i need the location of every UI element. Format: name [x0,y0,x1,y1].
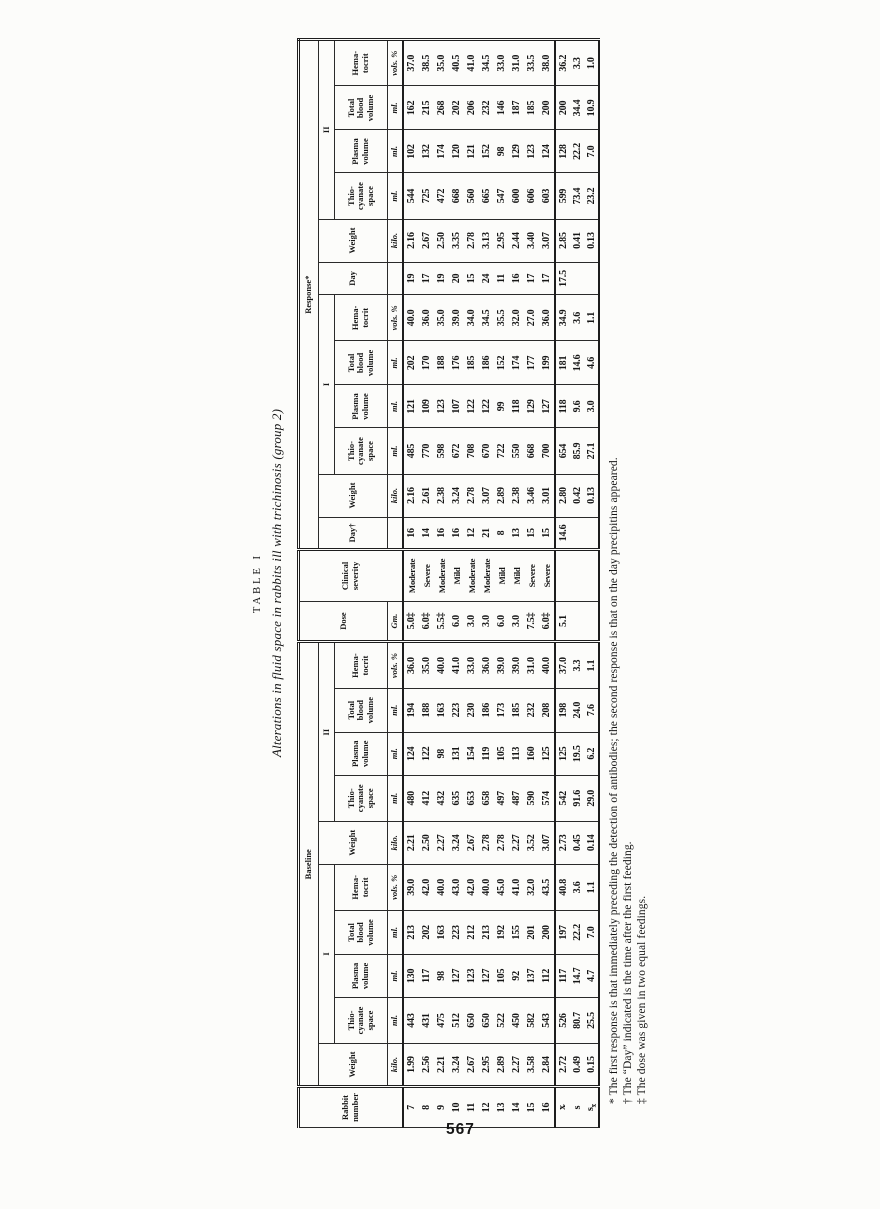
data-cell: 36.0 [479,642,494,688]
data-cell: 5.0‡ [403,601,419,642]
data-cell: 35.0 [434,40,449,86]
data-cell: 1.1 [584,295,599,341]
data-cell: 512 [449,997,464,1043]
column-header-thiocyanate-space: Thio- cyanate space [335,997,388,1043]
data-cell: 34.9 [555,295,570,341]
data-cell: 7.0 [584,910,599,954]
table-row: 103.2451212722343.03.2463513122341.06.0M… [449,40,464,1128]
data-cell: 16 [434,517,449,550]
data-cell: 3.52 [524,821,539,864]
table-row: 82.5643111720242.02.5041212218835.06.0‡S… [419,40,434,1128]
data-cell: Moderate [434,550,449,601]
data-cell: Moderate [464,550,479,601]
data-cell: 5.5‡ [434,601,449,642]
data-cell: 3.13 [479,219,494,262]
data-cell: 6.0‡ [419,601,434,642]
data-cell: 450 [509,997,524,1043]
data-cell: 200 [539,86,555,130]
data-cell: 73.4 [570,173,584,219]
data-cell: 668 [449,173,464,219]
data-cell: 3.58 [524,1044,539,1087]
data-cell: 152 [479,130,494,173]
data-cell: 185 [524,86,539,130]
data-cell [584,517,599,550]
column-header-hematocrit: Hema- tocrit [335,642,388,688]
data-cell: 3.0 [584,385,599,428]
data-cell: 194 [403,688,419,732]
data-cell: 21 [479,517,494,550]
data-cell: 3.01 [539,474,555,517]
data-cell: 124 [539,130,555,173]
data-cell: 8 [494,517,509,550]
data-cell: 15 [539,517,555,550]
data-cell: 38.0 [539,40,555,86]
column-header-hematocrit: Hema- tocrit [335,295,388,341]
data-cell: 35.5 [494,295,509,341]
stat-label: sx̄ [584,1087,599,1128]
data-cell: 1.1 [584,864,599,910]
column-header-dose: Dose [299,601,388,642]
data-cell: 20 [449,262,464,295]
data-cell: 43.5 [539,864,555,910]
data-cell: 2.78 [464,219,479,262]
data-cell: 206 [464,86,479,130]
data-cell: 19 [434,262,449,295]
data-cell: 200 [555,86,570,130]
data-cell: 137 [524,954,539,997]
data-cell: 599 [555,173,570,219]
data-cell: 36.2 [555,40,570,86]
data-cell: 37.0 [403,40,419,86]
data-cell: 650 [479,997,494,1043]
data-cell: 582 [524,997,539,1043]
data-cell: 475 [434,997,449,1043]
data-cell: 170 [419,341,434,385]
data-cell: 3.24 [449,474,464,517]
data-cell: 198 [555,688,570,732]
column-header-weight: Weight [319,219,388,262]
data-cell: 188 [434,341,449,385]
unit-ml: ml. [388,86,404,130]
data-cell: 2.21 [434,1044,449,1087]
data-cell: 7.5‡ [524,601,539,642]
table-body: 71.9944313021339.02.2148012419436.05.0‡M… [403,40,599,1128]
data-cell: 2.80 [555,474,570,517]
subgroup-header-two: II [319,642,335,821]
data-cell: 32.0 [509,295,524,341]
data-cell: 22.2 [570,130,584,173]
data-cell: 132 [419,130,434,173]
table-caption: Alterations in fluid space in rabbits il… [269,38,285,1128]
stats-row: s0.4980.714.722.23.60.4591.619.524.03.30… [570,40,584,1128]
data-cell: 542 [555,775,570,821]
data-cell: 14 [419,517,434,550]
data-cell: 174 [434,130,449,173]
stat-label: x̄ [555,1087,570,1128]
data-cell: 45.0 [494,864,509,910]
data-cell: 2.16 [403,474,419,517]
rabbit-number: 16 [539,1087,555,1128]
data-cell: 199 [539,341,555,385]
data-cell [570,601,584,642]
data-cell: 202 [449,86,464,130]
data-cell: 6.2 [584,732,599,775]
data-cell: 600 [509,173,524,219]
data-cell: 36.0 [403,642,419,688]
data-table: Rabbit number Baseline Dose Clinical sev… [297,38,600,1128]
data-cell: 3.3 [570,642,584,688]
data-cell: 603 [539,173,555,219]
data-cell: 14.6 [555,517,570,550]
column-header-plasma-volume: Plasma volume [335,385,388,428]
data-cell: 668 [524,428,539,474]
data-cell: 2.72 [555,1044,570,1087]
data-cell: Moderate [479,550,494,601]
unit-ml: ml. [388,130,404,173]
data-cell: 3.40 [524,219,539,262]
data-cell: 11 [494,262,509,295]
column-header-plasma-volume: Plasma volume [335,732,388,775]
header-group-row: Rabbit number Baseline Dose Clinical sev… [299,40,319,1128]
data-cell: 122 [479,385,494,428]
data-cell: 31.0 [509,40,524,86]
data-cell: 98 [434,954,449,997]
data-cell: 2.67 [464,821,479,864]
unit-ml: ml. [388,385,404,428]
data-cell: 0.14 [584,821,599,864]
data-cell: 197 [555,910,570,954]
footnote-asterisk: * The first response is that immediately… [607,38,621,1104]
data-cell: 432 [434,775,449,821]
data-cell: 3.6 [570,295,584,341]
data-cell: 2.38 [509,474,524,517]
data-cell: 43.0 [449,864,464,910]
data-cell: 160 [524,732,539,775]
data-cell: 15 [464,262,479,295]
data-cell: 102 [403,130,419,173]
data-cell: 35.0 [419,642,434,688]
data-cell: 1.0 [584,40,599,86]
data-cell: 127 [449,954,464,997]
data-cell: 131 [449,732,464,775]
data-cell: 2.89 [494,1044,509,1087]
data-cell: 154 [464,732,479,775]
data-cell: 16 [449,517,464,550]
data-cell: 3.0 [509,601,524,642]
rabbit-number: 14 [509,1087,524,1128]
data-cell: Mild [449,550,464,601]
unit-blank [388,517,404,550]
data-cell: 125 [539,732,555,775]
stats-row: sx̄0.1525.54.77.01.10.1429.06.27.61.10.1… [584,40,599,1128]
rabbit-number: 7 [403,1087,419,1128]
data-cell: 487 [509,775,524,821]
data-cell: 112 [539,954,555,997]
data-cell: Severe [524,550,539,601]
data-cell: 443 [403,997,419,1043]
group-header-baseline: Baseline [299,642,319,1087]
data-cell: 3.07 [539,821,555,864]
data-cell: 105 [494,732,509,775]
data-cell: 17 [419,262,434,295]
data-cell: 6.0 [494,601,509,642]
data-cell: 155 [509,910,524,954]
data-cell: 6.0 [449,601,464,642]
data-cell: 3.24 [449,821,464,864]
data-cell: 200 [539,910,555,954]
unit-weight: kilo. [388,474,404,517]
column-header-day-first: Day† [319,517,388,550]
data-cell: 653 [464,775,479,821]
data-cell: 9.6 [570,385,584,428]
data-cell: 33.5 [524,40,539,86]
data-cell: 3.6 [570,864,584,910]
data-cell: 2.27 [509,1044,524,1087]
data-cell: Moderate [403,550,419,601]
data-cell: 185 [509,688,524,732]
data-cell: 125 [555,732,570,775]
data-cell: 223 [449,688,464,732]
data-cell: 7.6 [584,688,599,732]
subgroup-header-one: I [319,295,335,474]
data-cell: 208 [539,688,555,732]
data-cell: 127 [539,385,555,428]
data-cell: 635 [449,775,464,821]
data-cell: 17 [539,262,555,295]
subgroup-header-one: I [319,864,335,1043]
unit-ml: ml. [388,954,404,997]
unit-vols-pct: vols. % [388,642,404,688]
data-cell: 770 [419,428,434,474]
column-header-hematocrit: Hema- tocrit [335,864,388,910]
column-header-plasma-volume: Plasma volume [335,130,388,173]
data-cell: 29.0 [584,775,599,821]
data-cell: 186 [479,341,494,385]
data-cell: 123 [464,954,479,997]
data-cell: 40.8 [555,864,570,910]
column-header-total-blood-volume: Total blood volume [335,688,388,732]
data-cell: 2.95 [494,219,509,262]
data-cell: 31.0 [524,642,539,688]
data-cell: Mild [509,550,524,601]
unit-vols-pct: vols. % [388,295,404,341]
column-header-clinical-severity: Clinical severity [299,550,404,601]
rabbit-number: 15 [524,1087,539,1128]
data-cell: 268 [434,86,449,130]
data-cell: 16 [403,517,419,550]
data-cell: 163 [434,688,449,732]
data-cell: 35.0 [434,295,449,341]
data-cell: 2.95 [479,1044,494,1087]
footnotes-block: * The first response is that immediately… [607,38,649,1128]
table-row: 92.214759816340.02.274329816340.05.5‡Mod… [434,40,449,1128]
data-cell: 2.38 [434,474,449,517]
data-cell: 3.0 [479,601,494,642]
rabbit-number: 12 [479,1087,494,1128]
data-cell: 34.5 [479,40,494,86]
column-header-weight: Weight [319,821,388,864]
data-cell: 213 [403,910,419,954]
data-cell [570,550,584,601]
column-header-plasma-volume: Plasma volume [335,954,388,997]
unit-vols-pct: vols. % [388,40,404,86]
data-cell: 700 [539,428,555,474]
data-cell: 213 [479,910,494,954]
data-cell: 431 [419,997,434,1043]
data-cell: 598 [434,428,449,474]
data-cell: 2.78 [494,821,509,864]
data-cell: 0.41 [570,219,584,262]
data-cell: 177 [524,341,539,385]
data-cell: 41.0 [464,40,479,86]
data-cell: 14.7 [570,954,584,997]
data-cell: 1.99 [403,1044,419,1087]
data-cell: 181 [555,341,570,385]
data-cell: 2.44 [509,219,524,262]
data-cell: 39.0 [403,864,419,910]
data-cell: Severe [419,550,434,601]
data-cell: 543 [539,997,555,1043]
rotated-table-block: TABLE I Alterations in fluid space in ra… [252,38,649,1128]
data-cell: 480 [403,775,419,821]
data-cell: 113 [509,732,524,775]
data-cell: 212 [464,910,479,954]
unit-ml: ml. [388,341,404,385]
data-cell: 163 [434,910,449,954]
data-cell: 152 [494,341,509,385]
data-cell: 2.85 [555,219,570,262]
data-cell: 4.7 [584,954,599,997]
data-cell: 725 [419,173,434,219]
data-cell: 23.2 [584,173,599,219]
data-cell: 2.61 [419,474,434,517]
data-cell [584,262,599,295]
table-row: 132.8952210519245.02.7849710517339.06.0M… [494,40,509,1128]
scanned-journal-page: TABLE I Alterations in fluid space in ra… [0,0,880,1209]
data-cell: 120 [449,130,464,173]
data-cell: 2.56 [419,1044,434,1087]
data-cell: 39.0 [449,295,464,341]
data-cell: 85.9 [570,428,584,474]
data-cell: 547 [494,173,509,219]
data-cell: 121 [403,385,419,428]
data-cell: 123 [524,130,539,173]
unit-ml: ml. [388,732,404,775]
data-cell: 186 [479,688,494,732]
data-cell: 560 [464,173,479,219]
data-cell: 650 [464,997,479,1043]
data-cell: 129 [524,385,539,428]
data-cell: 146 [494,86,509,130]
data-cell: 40.0 [403,295,419,341]
data-cell: 0.45 [570,821,584,864]
unit-vols-pct: vols. % [388,864,404,910]
data-cell: 0.42 [570,474,584,517]
data-cell: 174 [509,341,524,385]
data-cell: 117 [419,954,434,997]
data-cell: 10.9 [584,86,599,130]
data-cell: 2.67 [464,1044,479,1087]
data-cell: 118 [555,385,570,428]
data-cell: 6.0‡ [539,601,555,642]
data-cell: 22.2 [570,910,584,954]
column-header-hematocrit: Hema- tocrit [335,40,388,86]
data-cell: 722 [494,428,509,474]
data-cell: 232 [524,688,539,732]
data-cell: 24 [479,262,494,295]
data-cell: 2.21 [403,821,419,864]
column-header-day-second: Day [319,262,388,295]
data-cell: 3.24 [449,1044,464,1087]
column-header-thiocyanate-space: Thio- cyanate space [335,428,388,474]
table-title-block: TABLE I Alterations in fluid space in ra… [252,38,294,1128]
data-cell: 202 [403,341,419,385]
data-cell: 1.1 [584,642,599,688]
data-cell [555,550,570,601]
rabbit-number: 13 [494,1087,509,1128]
data-cell: 40.0 [434,864,449,910]
footnote-dagger: † The “Day” indicated is the time after … [621,38,635,1104]
data-cell: 2.27 [434,821,449,864]
data-cell: 5.1 [555,601,570,642]
data-cell: 550 [509,428,524,474]
data-cell: 15 [524,517,539,550]
unit-ml: ml. [388,688,404,732]
data-cell [570,262,584,295]
data-cell: 162 [403,86,419,130]
data-cell: 3.07 [479,474,494,517]
data-cell: 40.0 [539,642,555,688]
data-cell: 40.5 [449,40,464,86]
data-cell: 39.0 [494,642,509,688]
data-cell: 2.78 [464,474,479,517]
column-header-weight: Weight [319,474,388,517]
data-cell: 25.5 [584,997,599,1043]
data-cell: 80.7 [570,997,584,1043]
data-cell: 17.5 [555,262,570,295]
data-cell: 2.73 [555,821,570,864]
column-header-thiocyanate-space: Thio- cyanate space [335,775,388,821]
data-cell: 34.5 [479,295,494,341]
data-cell: 118 [509,385,524,428]
data-cell: 215 [419,86,434,130]
data-cell: 544 [403,173,419,219]
data-cell: 185 [464,341,479,385]
data-cell: 522 [494,997,509,1043]
data-cell: 230 [464,688,479,732]
data-cell: 119 [479,732,494,775]
data-cell: 0.13 [584,474,599,517]
group-header-response: Response* [299,40,319,550]
data-cell: 2.84 [539,1044,555,1087]
data-cell: 192 [494,910,509,954]
data-cell: 202 [419,910,434,954]
unit-ml: ml. [388,910,404,954]
data-cell: 98 [434,732,449,775]
data-cell: 33.0 [494,40,509,86]
table-number-label: TABLE I [252,38,263,1128]
data-cell: 2.67 [419,219,434,262]
unit-ml: ml. [388,775,404,821]
column-header-weight: Weight [319,1044,388,1087]
stats-row: x̄2.7252611719740.82.7354212519837.05.11… [555,40,570,1128]
data-cell: 201 [524,910,539,954]
table-row: 153.5858213720132.03.5259016023231.07.5‡… [524,40,539,1128]
data-cell: 34.0 [464,295,479,341]
data-cell: 42.0 [419,864,434,910]
unit-weight: kilo. [388,821,404,864]
data-cell: 19 [403,262,419,295]
